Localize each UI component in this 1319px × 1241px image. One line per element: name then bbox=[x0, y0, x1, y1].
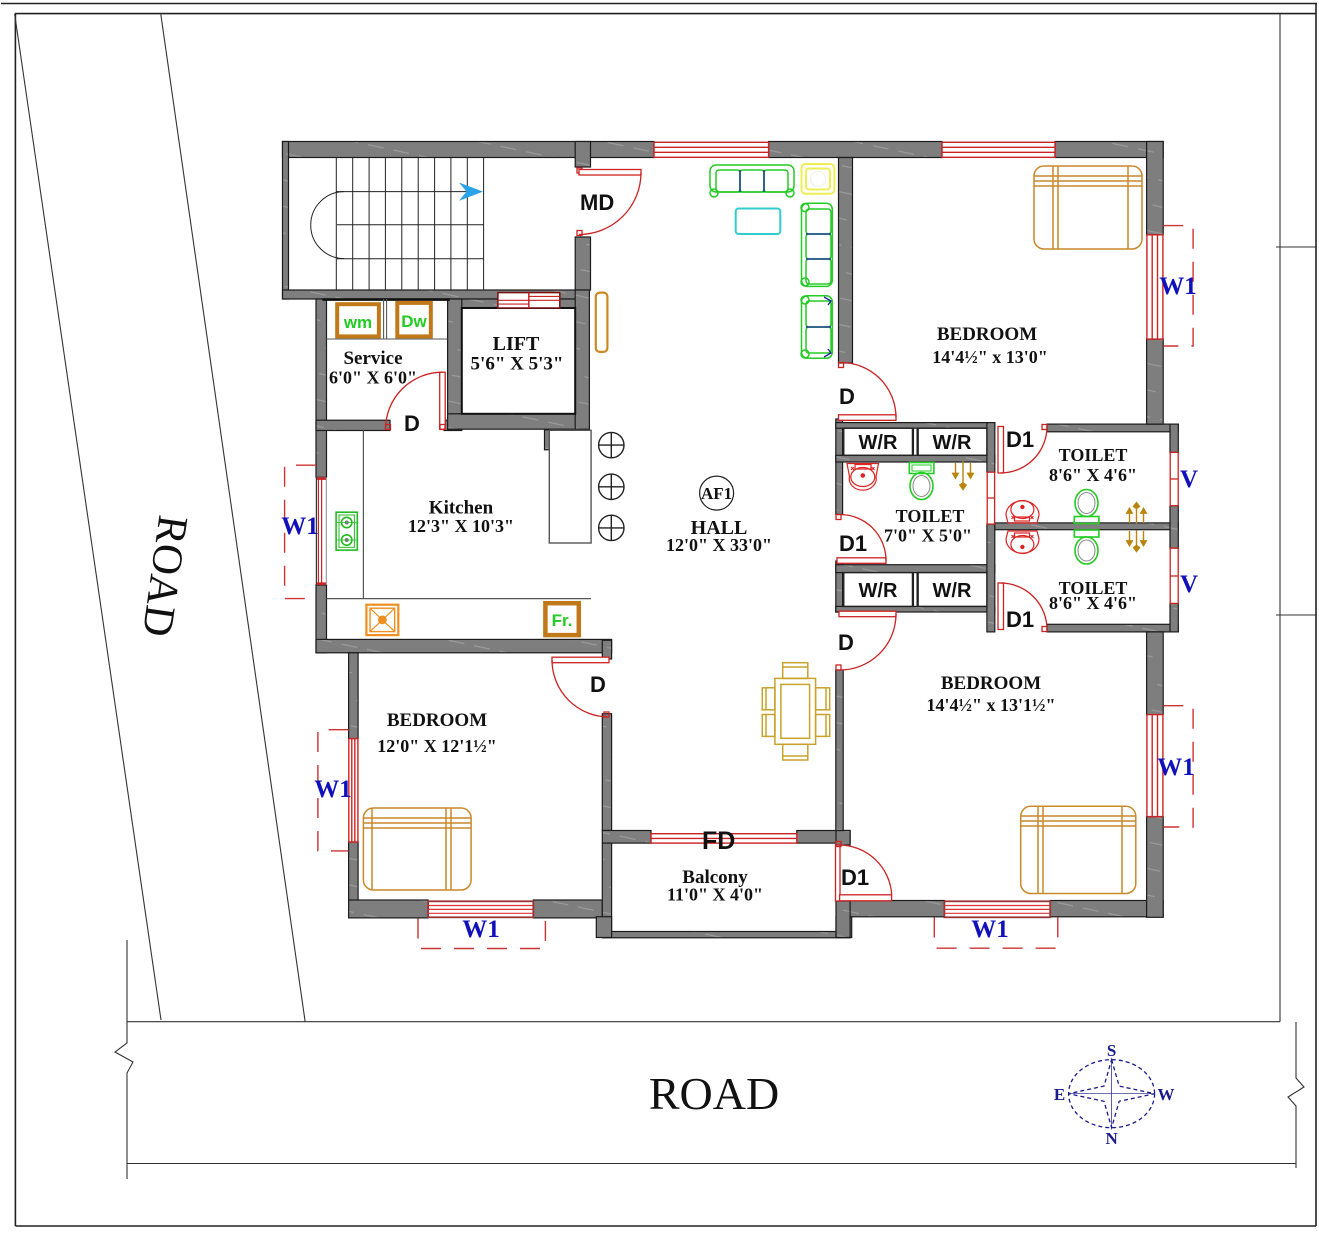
svg-text:12'0" X 33'0": 12'0" X 33'0" bbox=[666, 535, 772, 555]
svg-text:14'4½" x 13'0": 14'4½" x 13'0" bbox=[932, 347, 1048, 367]
svg-text:7'0" X 5'0": 7'0" X 5'0" bbox=[884, 526, 972, 546]
svg-text:W: W bbox=[1158, 1085, 1175, 1104]
svg-text:12'3" X 10'3": 12'3" X 10'3" bbox=[408, 516, 514, 536]
svg-text:5'6" X 5'3": 5'6" X 5'3" bbox=[471, 354, 564, 375]
svg-text:AF1: AF1 bbox=[701, 484, 732, 503]
svg-text:D: D bbox=[404, 411, 420, 436]
svg-text:Dw: Dw bbox=[401, 312, 427, 331]
svg-text:W/R: W/R bbox=[859, 432, 898, 454]
svg-text:BEDROOM: BEDROOM bbox=[941, 673, 1041, 694]
svg-text:S: S bbox=[1107, 1041, 1116, 1060]
svg-text:12'0" X 12'1½": 12'0" X 12'1½" bbox=[377, 736, 497, 756]
svg-text:W/R: W/R bbox=[933, 432, 972, 454]
svg-text:8'6" X 4'6": 8'6" X 4'6" bbox=[1049, 593, 1137, 613]
svg-text:wm: wm bbox=[343, 313, 372, 332]
svg-text:W1: W1 bbox=[1159, 273, 1197, 300]
svg-text:MD: MD bbox=[580, 190, 614, 215]
svg-text:V: V bbox=[1180, 466, 1198, 493]
svg-text:D1: D1 bbox=[1006, 427, 1034, 452]
svg-text:D: D bbox=[839, 384, 855, 409]
svg-text:ROAD: ROAD bbox=[649, 1068, 779, 1119]
svg-text:E: E bbox=[1054, 1085, 1065, 1104]
svg-text:W1: W1 bbox=[1157, 754, 1195, 781]
svg-text:14'4½" x 13'1½": 14'4½" x 13'1½" bbox=[927, 695, 1056, 715]
svg-text:D1: D1 bbox=[1006, 607, 1034, 632]
svg-text:W1: W1 bbox=[971, 916, 1009, 943]
svg-text:TOILET: TOILET bbox=[896, 506, 965, 526]
svg-text:W/R: W/R bbox=[933, 580, 972, 602]
svg-text:BEDROOM: BEDROOM bbox=[387, 710, 487, 731]
svg-text:D: D bbox=[838, 630, 854, 655]
svg-text:FD: FD bbox=[702, 827, 735, 855]
svg-text:TOILET: TOILET bbox=[1059, 445, 1128, 465]
svg-text:W/R: W/R bbox=[859, 580, 898, 602]
svg-text:LIFT: LIFT bbox=[493, 333, 540, 355]
svg-text:V: V bbox=[1180, 571, 1198, 598]
svg-text:D1: D1 bbox=[841, 865, 869, 890]
svg-text:11'0" X 4'0": 11'0" X 4'0" bbox=[667, 885, 763, 905]
svg-text:W1: W1 bbox=[462, 916, 500, 943]
svg-text:Fr.: Fr. bbox=[552, 611, 573, 630]
svg-text:BEDROOM: BEDROOM bbox=[937, 324, 1037, 345]
svg-text:Service: Service bbox=[343, 348, 402, 369]
svg-text:N: N bbox=[1105, 1129, 1118, 1148]
svg-text:W1: W1 bbox=[314, 776, 352, 803]
svg-text:D1: D1 bbox=[839, 531, 867, 556]
svg-text:D: D bbox=[590, 672, 606, 697]
svg-text:6'0" X 6'0": 6'0" X 6'0" bbox=[329, 368, 417, 388]
svg-text:W1: W1 bbox=[281, 513, 319, 540]
svg-text:8'6" X 4'6": 8'6" X 4'6" bbox=[1049, 465, 1137, 485]
